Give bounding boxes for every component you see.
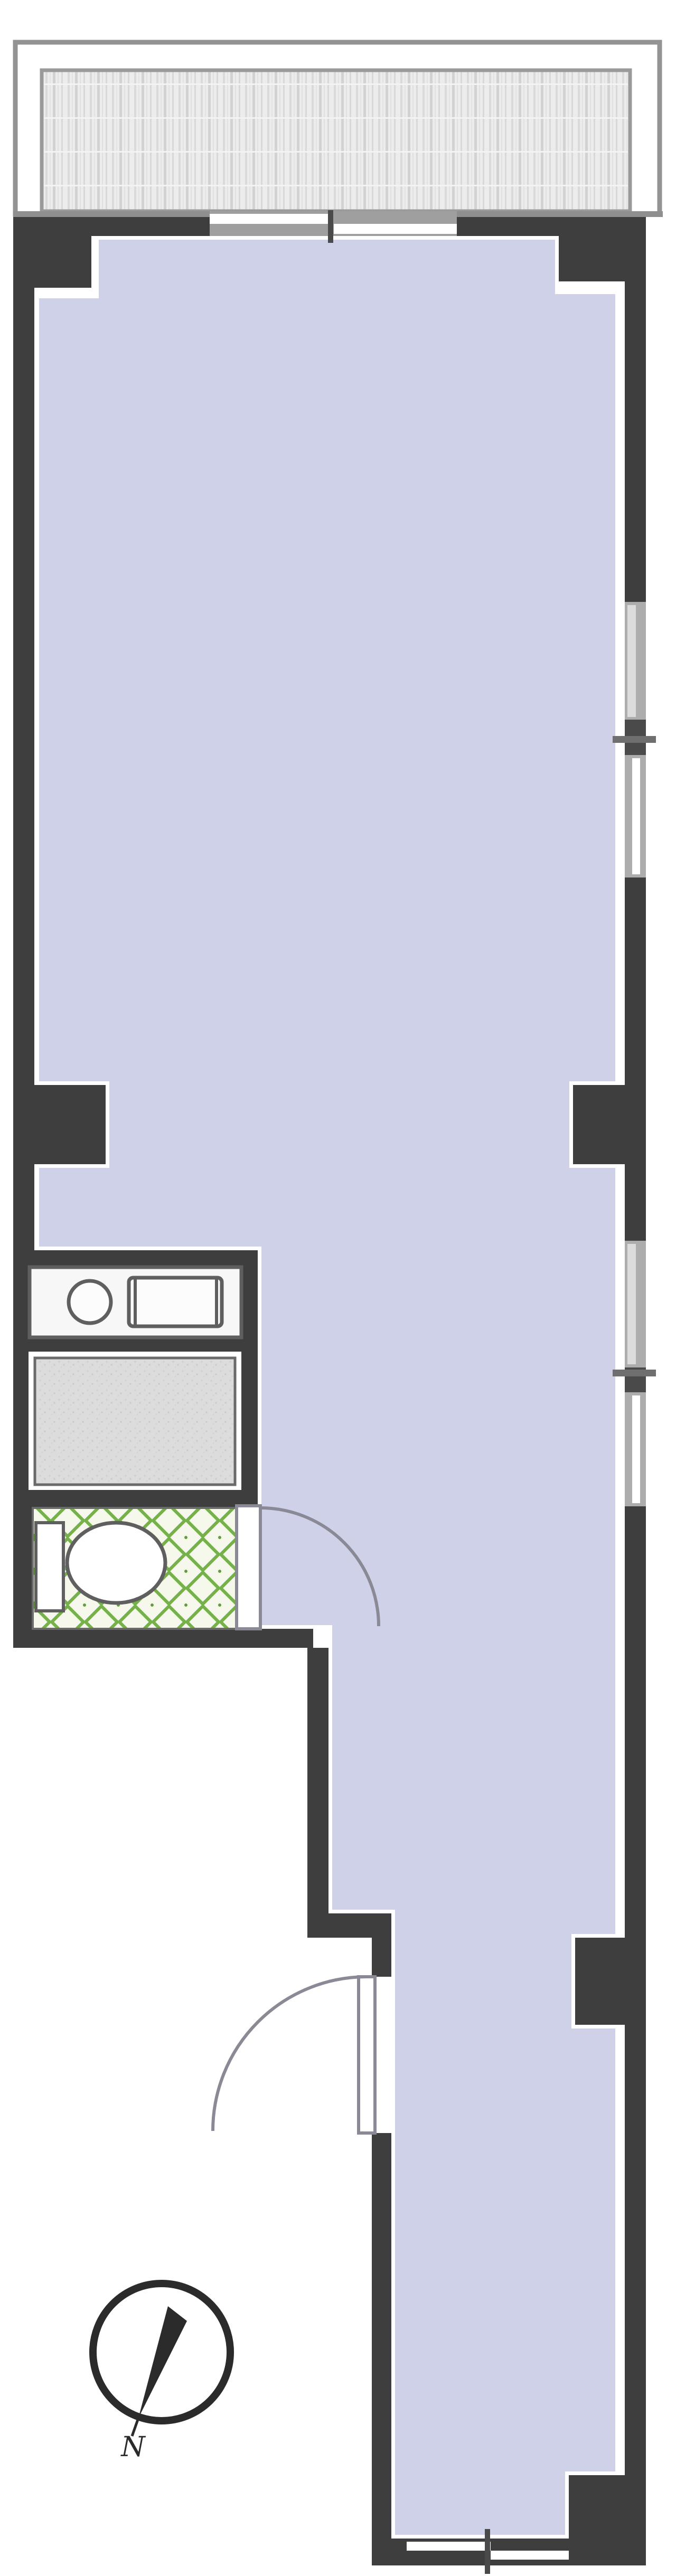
balcony-floor-hatch [42,70,630,211]
wall-entry-jog [307,1913,391,1938]
wall-entry-lower [372,2133,391,2539]
kitchen-sink [69,1281,111,1323]
floor-plan-drawing: N [0,0,676,2576]
top-window-pane-right [334,224,457,234]
top-window-pane-left [210,214,332,224]
pillar-top-right [559,211,646,281]
right-upper-window-glass-a [627,605,636,717]
wall-block-bottom [13,1629,313,1648]
wall-bottom-left-segment [372,2539,407,2565]
wall-right-4 [625,1506,646,1938]
toilet-bowl [67,1523,165,1603]
wall-kitchen-utility-divider [13,1338,241,1352]
entrance-door-leaf [359,1977,375,2133]
bottom-window-center-tick [485,2529,490,2574]
pillar-right-mid [573,1085,646,1164]
wall-corridor-left [307,1648,328,1913]
wall-right-3 [625,1164,646,1241]
right-lower-window-glass-b [632,1395,640,1503]
compass-north-label: N [120,2431,146,2463]
floor-plan-page: N [0,0,676,2576]
entrance-door-swing-arc [213,1977,367,2131]
bottom-window-pane-left [407,2542,491,2551]
toilet-tank [36,1523,63,1611]
pillar-left-mid [13,1085,106,1164]
pillar-right-lower [575,1938,646,2025]
wall-kitchen-top [13,1250,258,1266]
bottom-window-pane-right [491,2551,569,2560]
compass-needle [138,2306,187,2418]
wall-block-right [241,1266,258,1506]
right-lower-window-glass-a [627,1244,636,1364]
wall-left-upper [13,288,34,1085]
wall-right-2 [625,877,646,1085]
wall-entry-upper-stub [372,1938,391,1977]
kitchen-stove [129,1278,222,1326]
right-upper-window-tick [613,736,656,743]
wall-right-5 [625,2025,646,2475]
toilet-door-leaf [237,1506,260,1629]
right-upper-window-glass-b [632,758,640,874]
wall-right-upper [625,281,646,602]
right-lower-window-tick [613,1370,656,1376]
wall-bottom-right-segment [569,2539,646,2565]
wall-left-lower [13,1164,34,1250]
wall-utility-toilet-divider [13,1490,241,1508]
top-window-center-tick [328,210,333,243]
pillar-top-left [13,211,91,288]
utility-unit [35,1358,235,1485]
